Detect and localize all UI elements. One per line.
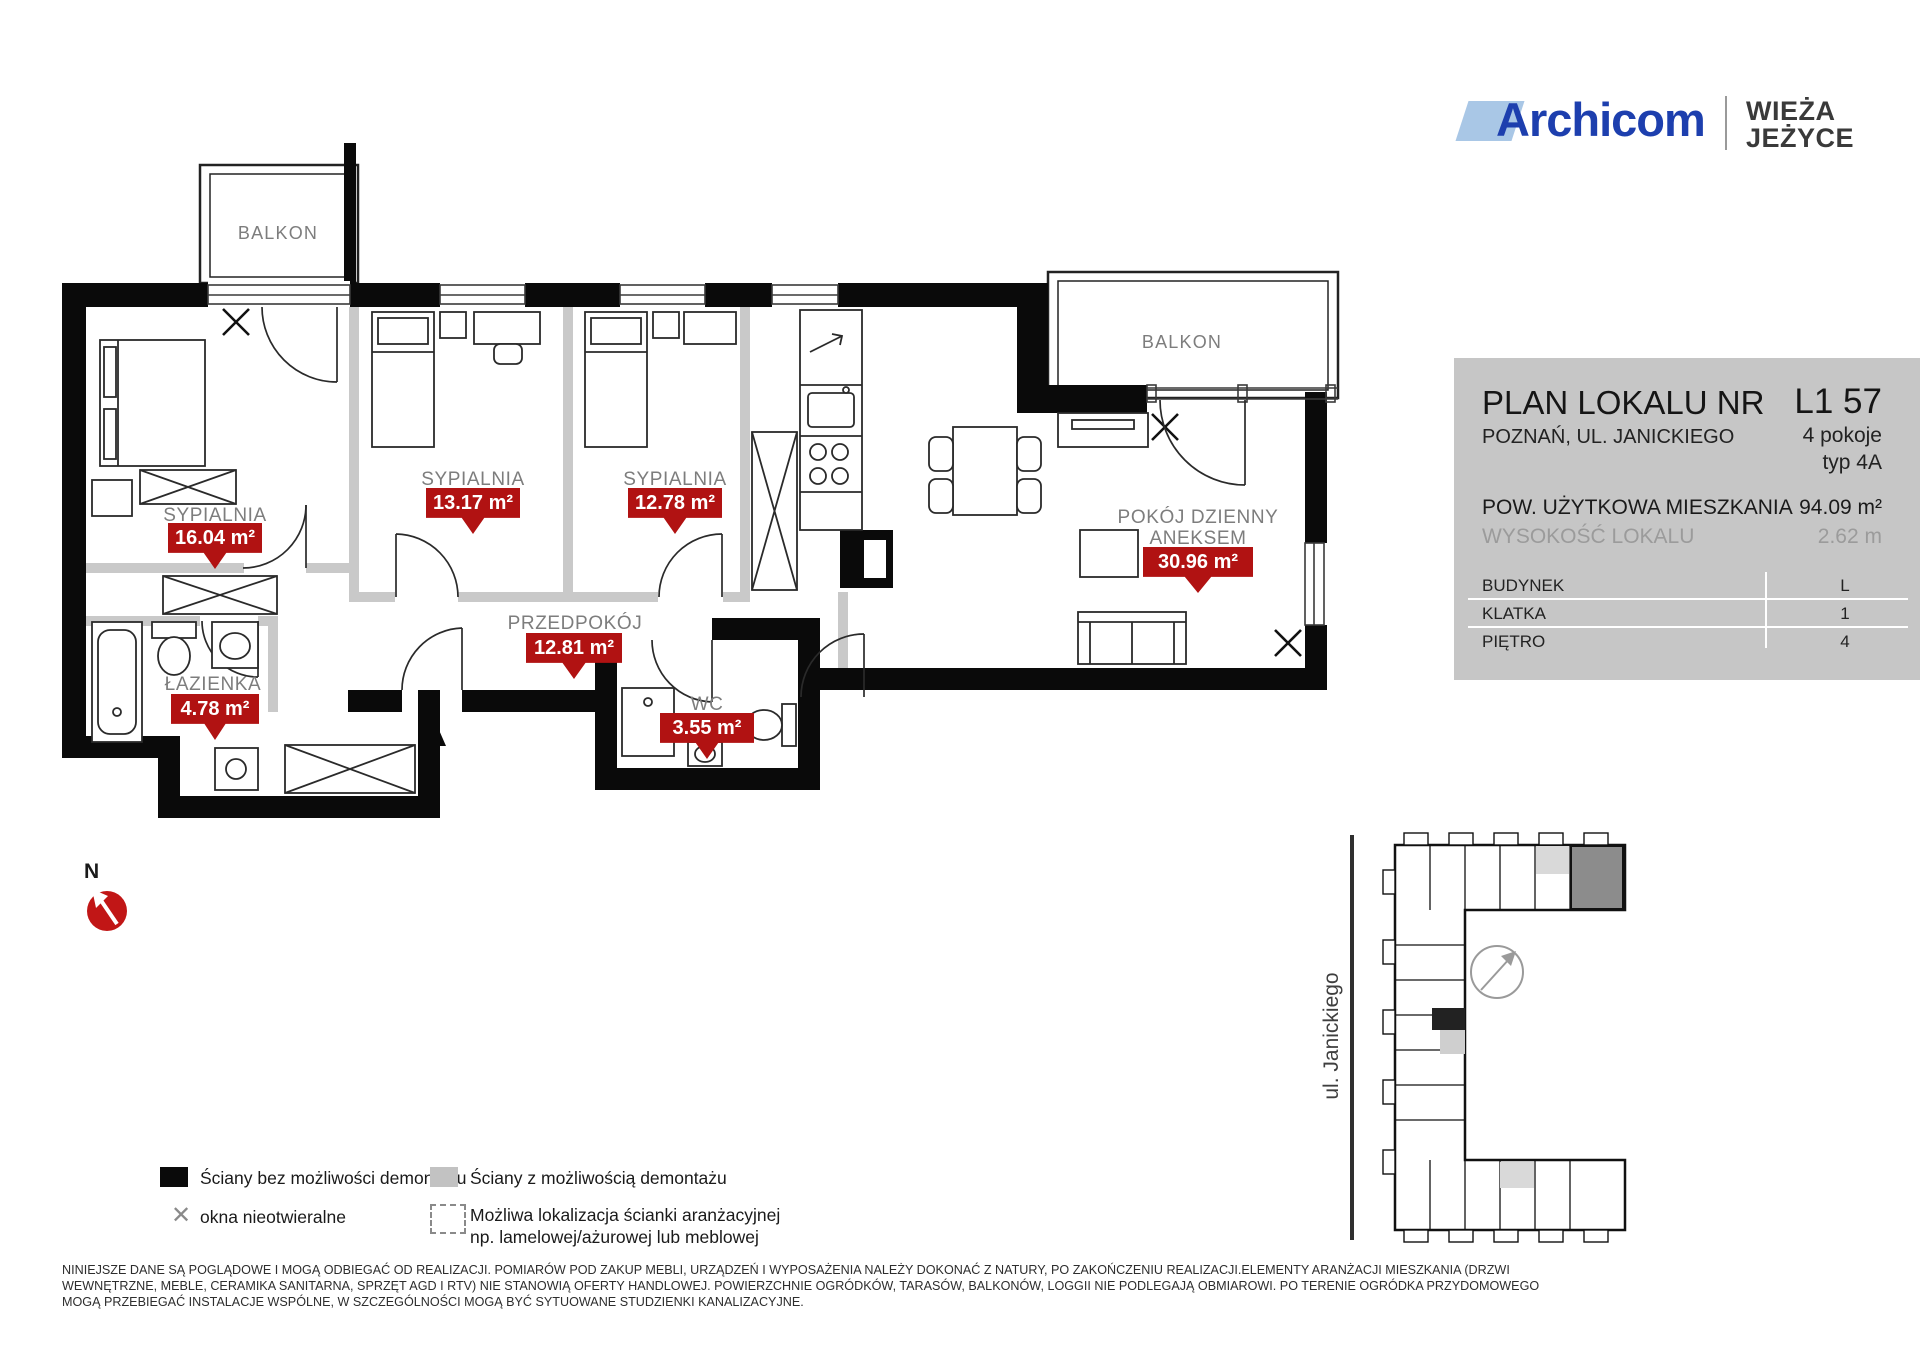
legend-fixed-window-icon: ✕ xyxy=(171,1201,191,1230)
usable-area-label: POW. UŻYTKOWA MIESZKANIA xyxy=(1482,496,1793,520)
legend-label-fixed-windows: okna nieotwieralne xyxy=(200,1207,346,1228)
usable-area-value: 94.09 m² xyxy=(1799,496,1882,520)
detail-row-label: PIĘTRO xyxy=(1482,632,1545,652)
unit-number: L1 57 xyxy=(1794,382,1882,422)
logo-divider xyxy=(1725,96,1727,150)
legend-swatch-demountable-wall xyxy=(430,1167,458,1187)
detail-row-label: BUDYNEK xyxy=(1482,576,1564,596)
disclaimer-line2: WEWNĘTRZNE, MEBLE, CERAMIKA SANITARNA, S… xyxy=(62,1278,1542,1294)
legend-swatch-solid-wall xyxy=(160,1167,188,1187)
panel-divider xyxy=(1468,626,1908,628)
room-label-pokoj-dzienny: POKÓJ DZIENNY xyxy=(1118,507,1279,529)
legend-label-demountable-wall: Ściany z możliwością demontażu xyxy=(470,1168,727,1189)
street-label: ul. Janickiego xyxy=(1320,916,1344,1156)
legend-label-solid-wall: Ściany bez możliwości demontażu xyxy=(200,1168,467,1189)
north-label: N xyxy=(84,860,99,884)
balcony-divider-wall xyxy=(344,143,356,283)
panel-title: PLAN LOKALU NR xyxy=(1482,384,1764,422)
project-name: WIEŻA JEŻYCE xyxy=(1746,98,1854,152)
detail-row-value: 1 xyxy=(1810,604,1880,624)
rooms-count: 4 pokoje xyxy=(1803,424,1882,448)
project-name-line1: WIEŻA xyxy=(1746,98,1854,125)
north-arrow-icon xyxy=(87,889,127,931)
detail-row-label: KLATKA xyxy=(1482,604,1546,624)
room-label-wc: WC xyxy=(691,694,724,716)
unit-type: typ 4A xyxy=(1822,451,1882,475)
room-label-pokoj-dzienny-line2: ANEKSEM xyxy=(1149,528,1246,550)
detail-row-value: 4 xyxy=(1810,632,1880,652)
project-name-line2: JEŻYCE xyxy=(1746,125,1854,152)
disclaimer-line1: NINIEJSZE DANE SĄ POGLĄDOWE I MOGĄ ODBIE… xyxy=(62,1262,1542,1278)
legend-swatch-arrangement-wall xyxy=(430,1204,466,1234)
room-label-lazienka: ŁAZIENKA xyxy=(165,674,262,696)
height-label: WYSOKOŚĆ LOKALU xyxy=(1482,525,1694,549)
legend-label-arrangement-wall-line2: np. lamelowej/ażurowej lub meblowej xyxy=(470,1227,759,1248)
panel-divider xyxy=(1468,598,1908,600)
archicom-logo-text: Archicom xyxy=(1496,92,1705,147)
room-label-sypialnia-3: SYPIALNIA xyxy=(623,469,727,491)
detail-row-value: L xyxy=(1810,576,1880,596)
legend-label-arrangement-wall: Możliwa lokalizacja ścianki aranżacyjnej xyxy=(470,1205,780,1226)
room-label-przedpokoj: PRZEDPOKÓJ xyxy=(508,613,643,635)
floor-plan-page: Archicom WIEŻA JEŻYCE PLAN LOKALU NR L1 … xyxy=(0,0,1920,1358)
room-label-balkon-left: BALKON xyxy=(238,223,318,244)
disclaimer-line3: MOGĄ PRZEBIEGAĆ INSTALACJE WSPÓLNE, W SZ… xyxy=(62,1294,1542,1310)
site-map xyxy=(1350,833,1625,1242)
unit-info-panel: PLAN LOKALU NR L1 57 POZNAŃ, UL. JANICKI… xyxy=(1454,358,1920,680)
room-label-sypialnia-2: SYPIALNIA xyxy=(421,469,525,491)
height-value: 2.62 m xyxy=(1818,525,1882,549)
site-map-highlighted-unit xyxy=(1571,846,1623,909)
room-label-balkon-right: BALKON xyxy=(1142,332,1222,353)
panel-divider-vertical xyxy=(1765,572,1767,648)
shaft-opening xyxy=(864,540,886,578)
unit-address: POZNAŃ, UL. JANICKIEGO xyxy=(1482,426,1734,449)
map-compass-icon xyxy=(1471,946,1523,998)
